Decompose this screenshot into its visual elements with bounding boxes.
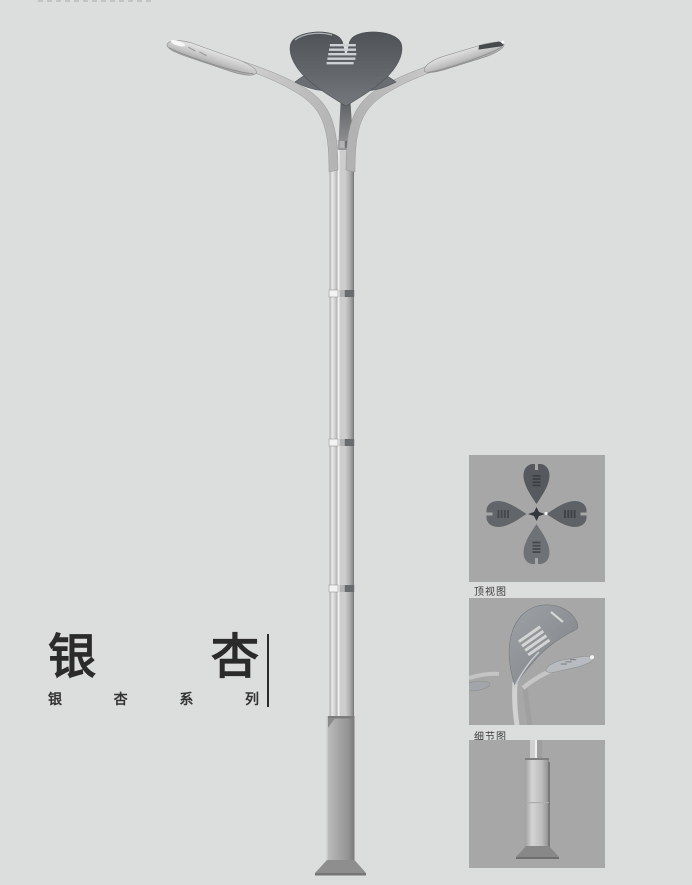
pole xyxy=(329,141,354,716)
product-series: 银 杏 系 列 xyxy=(48,689,259,709)
panel-base-view xyxy=(469,740,605,868)
series-char: 系 xyxy=(179,689,193,709)
detail-tube-right xyxy=(525,684,530,725)
top-view-highlight-dot xyxy=(544,512,547,515)
detail-lamp-head xyxy=(544,652,595,674)
panel-top-view xyxy=(469,455,605,582)
pole-joint-4 xyxy=(329,585,354,592)
catalog-page: 顶视图 xyxy=(0,0,692,885)
title-char: 杏 xyxy=(211,632,259,684)
detail-view-figure xyxy=(469,598,605,725)
title-char: 银 xyxy=(48,632,96,684)
panel-label-top-view: 顶视图 xyxy=(474,583,507,598)
panel-detail-view xyxy=(469,598,605,725)
base-view-pole xyxy=(516,740,559,859)
top-view-figure xyxy=(469,455,605,582)
series-char: 银 xyxy=(48,689,62,709)
series-char: 杏 xyxy=(114,689,128,709)
detail-left-arm xyxy=(469,674,499,693)
detail-tube-left xyxy=(515,682,517,725)
top-view-center xyxy=(528,507,545,521)
pole-base xyxy=(315,716,366,876)
left-lamp-head xyxy=(165,36,259,79)
pole-joint-2 xyxy=(329,290,354,297)
base-view-figure xyxy=(469,740,605,868)
base-plate xyxy=(315,860,366,873)
series-char: 列 xyxy=(245,689,259,709)
base-view-plate xyxy=(516,846,559,857)
title-divider xyxy=(267,634,269,707)
product-title: 银 杏 xyxy=(48,632,259,684)
product-title-block: 银 杏 银 杏 系 列 xyxy=(48,632,259,709)
right-lamp-head xyxy=(422,37,507,76)
pole-joint-3 xyxy=(329,439,354,446)
